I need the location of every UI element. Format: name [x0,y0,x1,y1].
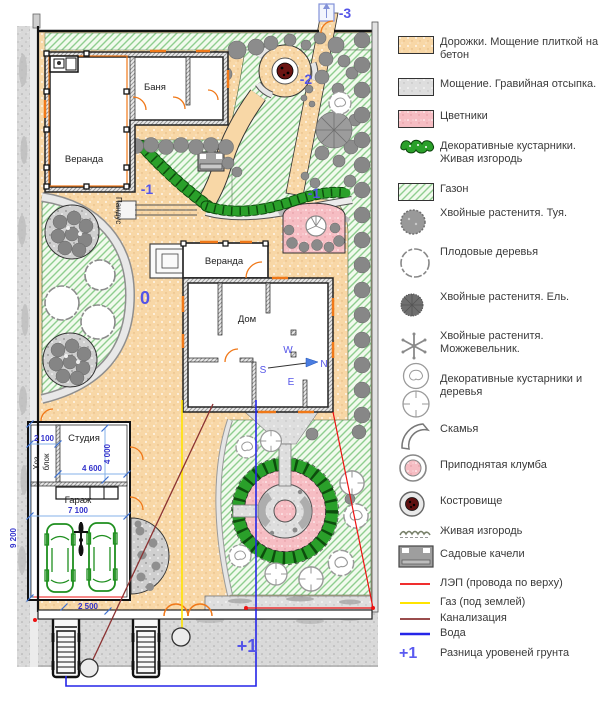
legend-label: Мощение. Гравийная отсыпка. [440,78,600,91]
fire-pit [277,63,293,79]
label-hoz1: Хоз. [32,454,41,470]
level-minus3: -3 [339,5,352,21]
water-line-swatch [398,630,432,638]
legend-label: Живая изгородь [440,525,600,538]
legend-label: Скамья [440,423,600,436]
level-plus1: +1 [237,636,258,656]
spruce-large [316,112,352,148]
spruce-icon [398,291,426,319]
flowerbeds-swatch [398,110,434,128]
power-line-swatch [398,580,432,588]
dim-garage-width: 7 100 [68,506,89,515]
manhole [80,659,98,677]
fence-right [372,22,378,612]
legend-label: Канализация [440,612,600,625]
level-minus1-left: -1 [141,181,154,197]
street-post [33,14,40,28]
shrubs-trees-icon [398,361,434,421]
level-minus2: -2 [300,71,313,87]
label-garage: Гараж [65,495,92,506]
compass-n: N [320,359,327,370]
dim-garage-depth: 9 200 [9,527,18,548]
level-symbol: +1 [399,645,417,663]
label-house-veranda: Веранда [205,256,244,267]
legend-label: Вода [440,627,600,640]
legend-label: Разница уровеней грунта [440,647,600,660]
manhole [172,628,190,646]
stove-icon [50,56,78,72]
fruit-tree-icon [398,246,432,280]
label-hoz2: блок [42,453,51,470]
compass-s: S [260,365,267,376]
label-studio: Студия [68,433,100,444]
site-plan-page: 2 100 4 600 4 000 7 100 9 200 2 500 W N … [0,0,609,701]
compass-w: W [283,345,293,356]
legend-label: Хвойные растенитя. Ель. [440,291,600,304]
shrub-cluster [43,333,97,387]
legend-label: ЛЭП (провода по верху) [440,577,600,590]
gravel-swatch [398,78,434,96]
flower-beds [283,203,345,253]
legend-label: Декоративные кустарники. Живая изгородь [440,140,600,166]
dim-hoz-width: 2 100 [34,434,55,443]
fence-bottom [38,610,372,619]
legend-label: Садовые качели [440,548,600,561]
site-plan: 2 100 4 600 4 000 7 100 9 200 2 500 W N … [0,0,385,701]
level-minus1-right: -1 [308,185,321,201]
truck [132,613,161,677]
gas-line-swatch [398,599,432,607]
label-house: Дом [238,314,256,325]
dim-gate-width: 2 500 [78,602,99,611]
decorative-shrub [329,92,351,114]
legend: Дорожки. Мощение плиткой на бетон Мощени… [385,0,609,701]
garden-swing [198,152,224,171]
legend-label: Костровище [440,495,600,508]
thuja-icon [398,207,428,237]
legend-label: Газон [440,183,600,196]
legend-label: Декоративные кустарники и деревья [440,373,600,399]
raised-bed-icon [398,453,428,483]
shrub-cluster [45,205,99,259]
bench-icon [398,419,432,453]
sewer-line-swatch [398,615,432,623]
paths-swatch [398,36,434,54]
fire-pit-icon [398,490,426,518]
hedge-icon [398,526,432,540]
dim-studio-width: 4 600 [82,464,103,473]
label-pandus: Пандус [114,197,123,224]
shrub-hedge-icon [398,133,438,159]
lawn-swatch [398,183,434,201]
garden-swing-icon [398,545,434,569]
juniper-icon [398,330,430,362]
legend-label: Хвойные растенитя. Можжевельник. [440,330,600,356]
legend-label: Приподнятая клумба [440,459,600,472]
level-zero: 0 [140,288,150,308]
legend-label: Газ (под землей) [440,596,600,609]
label-bath-veranda: Веранда [65,154,104,165]
compass-e: E [288,377,295,388]
dim-studio-depth: 4 000 [103,443,112,464]
truck [52,613,81,677]
legend-label: Хвойные растенитя. Туя. [440,207,600,220]
legend-label: Плодовые деревья [440,246,600,259]
label-banya: Баня [144,82,166,93]
legend-label: Цветники [440,110,600,123]
legend-label: Дорожки. Мощение плиткой на бетон [440,36,600,62]
